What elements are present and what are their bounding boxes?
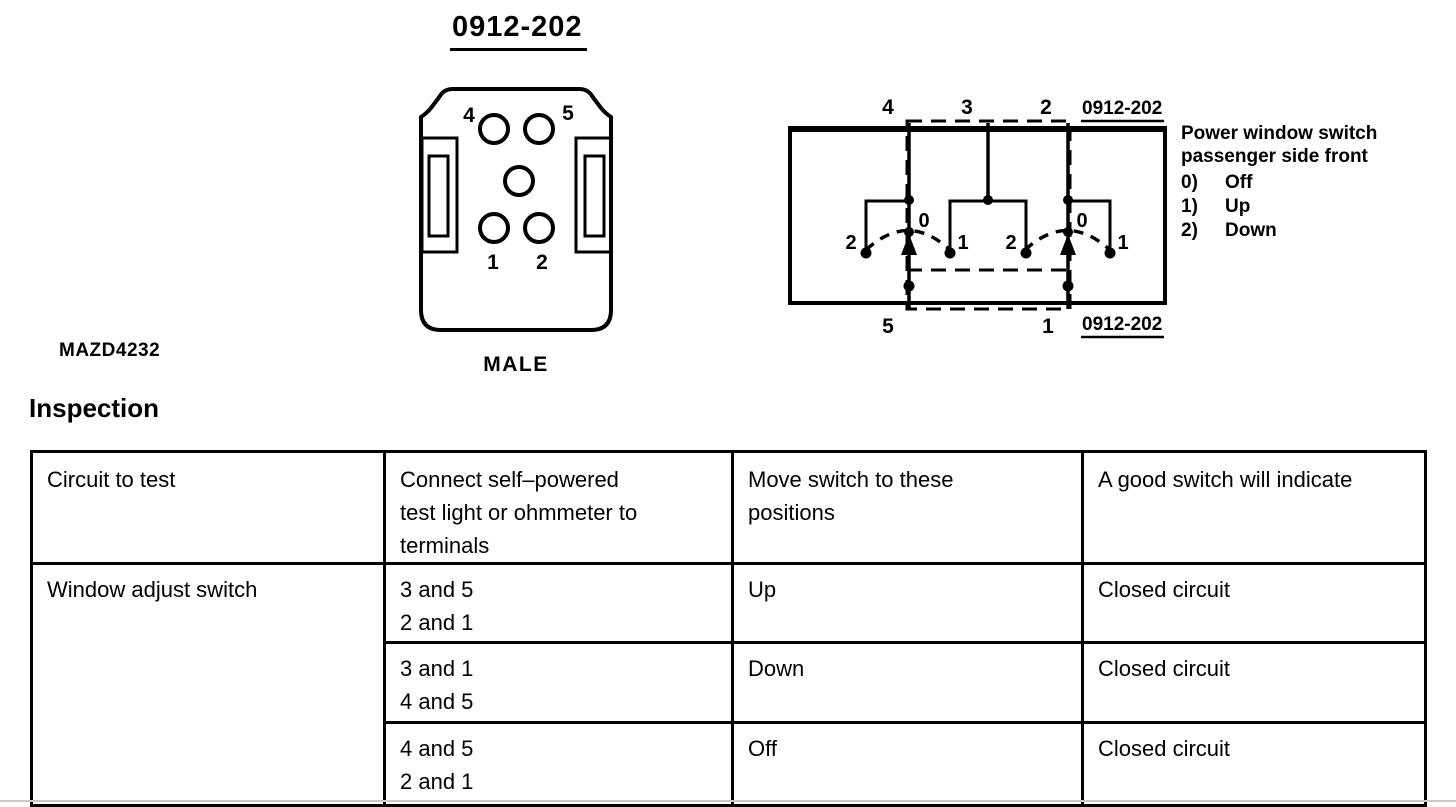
- position-label: Off: [748, 732, 1069, 765]
- scan-edge-artifact: [0, 800, 1456, 802]
- page-title: 0912-202: [450, 11, 587, 51]
- col-header-circuit: Circuit to test: [32, 452, 385, 564]
- right-switch-pos-1: 1: [1117, 232, 1128, 254]
- pin-5-label: 5: [562, 102, 574, 125]
- circuit-label: Window adjust switch: [47, 573, 371, 606]
- terminal-5-label: 5: [882, 315, 894, 338]
- terminal-4-label: 4: [882, 96, 894, 119]
- legend-item-label: Up: [1225, 195, 1411, 219]
- terminal-pair: 2 and 1: [400, 606, 719, 639]
- result-label: Closed circuit: [1098, 652, 1412, 685]
- header-line: terminals: [400, 529, 719, 562]
- cell-position: Down: [733, 643, 1083, 723]
- circuit-diagram: 4 3 2 5 1 0912-202 0912-202 0 2 1 0 2 1: [780, 85, 1180, 347]
- connector-diagram: 4 5 1 2: [405, 80, 630, 342]
- right-wiper-arrow: [1060, 234, 1076, 255]
- cell-terminals: 3 and 5 2 and 1: [385, 564, 733, 643]
- pin-1: [480, 214, 508, 242]
- result-label: Closed circuit: [1098, 573, 1412, 606]
- header-line: Move switch to these: [748, 463, 1069, 496]
- terminal-3-label: 3: [961, 96, 973, 119]
- terminal-2-label: 2: [1040, 96, 1052, 119]
- connector-latch-left-inner: [429, 156, 448, 236]
- pin-4: [480, 115, 508, 143]
- connector-latch-right-inner: [585, 156, 604, 236]
- terminal-pair: 4 and 5: [400, 685, 719, 718]
- col-header-positions: Move switch to these positions: [733, 452, 1083, 564]
- result-label: Closed circuit: [1098, 732, 1412, 765]
- cell-terminals: 4 and 5 2 and 1: [385, 723, 733, 806]
- right-switch-pos-0: 0: [1076, 210, 1087, 232]
- terminal-pair: 2 and 1: [400, 765, 719, 798]
- pin-2: [525, 214, 553, 242]
- terminal-pair: 3 and 5: [400, 573, 719, 606]
- circuit-legend: Power window switch passenger side front…: [1181, 122, 1411, 243]
- terminal-pair: 4 and 5: [400, 732, 719, 765]
- position-label: Up: [748, 573, 1069, 606]
- table-header-row: Circuit to test Connect self–powered tes…: [32, 452, 1426, 564]
- header-line: test light or ohmmeter to: [400, 496, 719, 529]
- cell-result: Closed circuit: [1083, 723, 1426, 806]
- col-header-terminals: Connect self–powered test light or ohmme…: [385, 452, 733, 564]
- pin-1-label: 1: [487, 251, 499, 274]
- legend-item-label: Down: [1225, 219, 1411, 243]
- table-row: Window adjust switch 3 and 5 2 and 1 Up …: [32, 564, 1426, 643]
- left-wiper-arrow: [901, 234, 917, 255]
- legend-item-label: Off: [1225, 171, 1411, 195]
- terminal-pair: 3 and 1: [400, 652, 719, 685]
- pin-5: [525, 115, 553, 143]
- pin-2-label: 2: [536, 251, 548, 274]
- legend-item-num: 1): [1181, 195, 1225, 219]
- pin-4-label: 4: [463, 104, 475, 127]
- legend-item-num: 0): [1181, 171, 1225, 195]
- right-switch-bracket: [1068, 201, 1110, 252]
- inspection-table: Circuit to test Connect self–powered tes…: [30, 450, 1427, 807]
- circuit-ref-bottom: 0912-202: [1082, 314, 1162, 335]
- header-line: A good switch will indicate: [1098, 463, 1412, 496]
- legend-item-down: 2) Down: [1181, 219, 1411, 243]
- legend-item-num: 2): [1181, 219, 1225, 243]
- cell-circuit-group: Window adjust switch: [32, 564, 385, 806]
- connector-gender-label: MALE: [483, 353, 549, 377]
- figure-code: MAZD4232: [59, 340, 160, 362]
- left-switch-pos-0: 0: [918, 210, 929, 232]
- right-switch-pos-2: 2: [1005, 232, 1016, 254]
- cell-position: Up: [733, 564, 1083, 643]
- header-line: Circuit to test: [47, 463, 371, 496]
- header-line: positions: [748, 496, 1069, 529]
- header-line: Connect self–powered: [400, 463, 719, 496]
- pin-center: [505, 167, 533, 195]
- legend-items: 0) Off 1) Up 2) Down: [1181, 171, 1411, 243]
- legend-item-off: 0) Off: [1181, 171, 1411, 195]
- cell-result: Closed circuit: [1083, 643, 1426, 723]
- terminal-1-label: 1: [1042, 315, 1054, 338]
- position-label: Down: [748, 652, 1069, 685]
- legend-item-up: 1) Up: [1181, 195, 1411, 219]
- legend-title-line2: passenger side front: [1181, 145, 1411, 168]
- cell-result: Closed circuit: [1083, 564, 1426, 643]
- legend-title-line1: Power window switch: [1181, 122, 1411, 145]
- section-heading: Inspection: [29, 393, 159, 424]
- circuit-ref-top: 0912-202: [1082, 98, 1162, 119]
- cell-terminals: 3 and 1 4 and 5: [385, 643, 733, 723]
- left-switch-pos-2: 2: [845, 232, 856, 254]
- col-header-result: A good switch will indicate: [1083, 452, 1426, 564]
- left-switch-pos-1: 1: [957, 232, 968, 254]
- cell-position: Off: [733, 723, 1083, 806]
